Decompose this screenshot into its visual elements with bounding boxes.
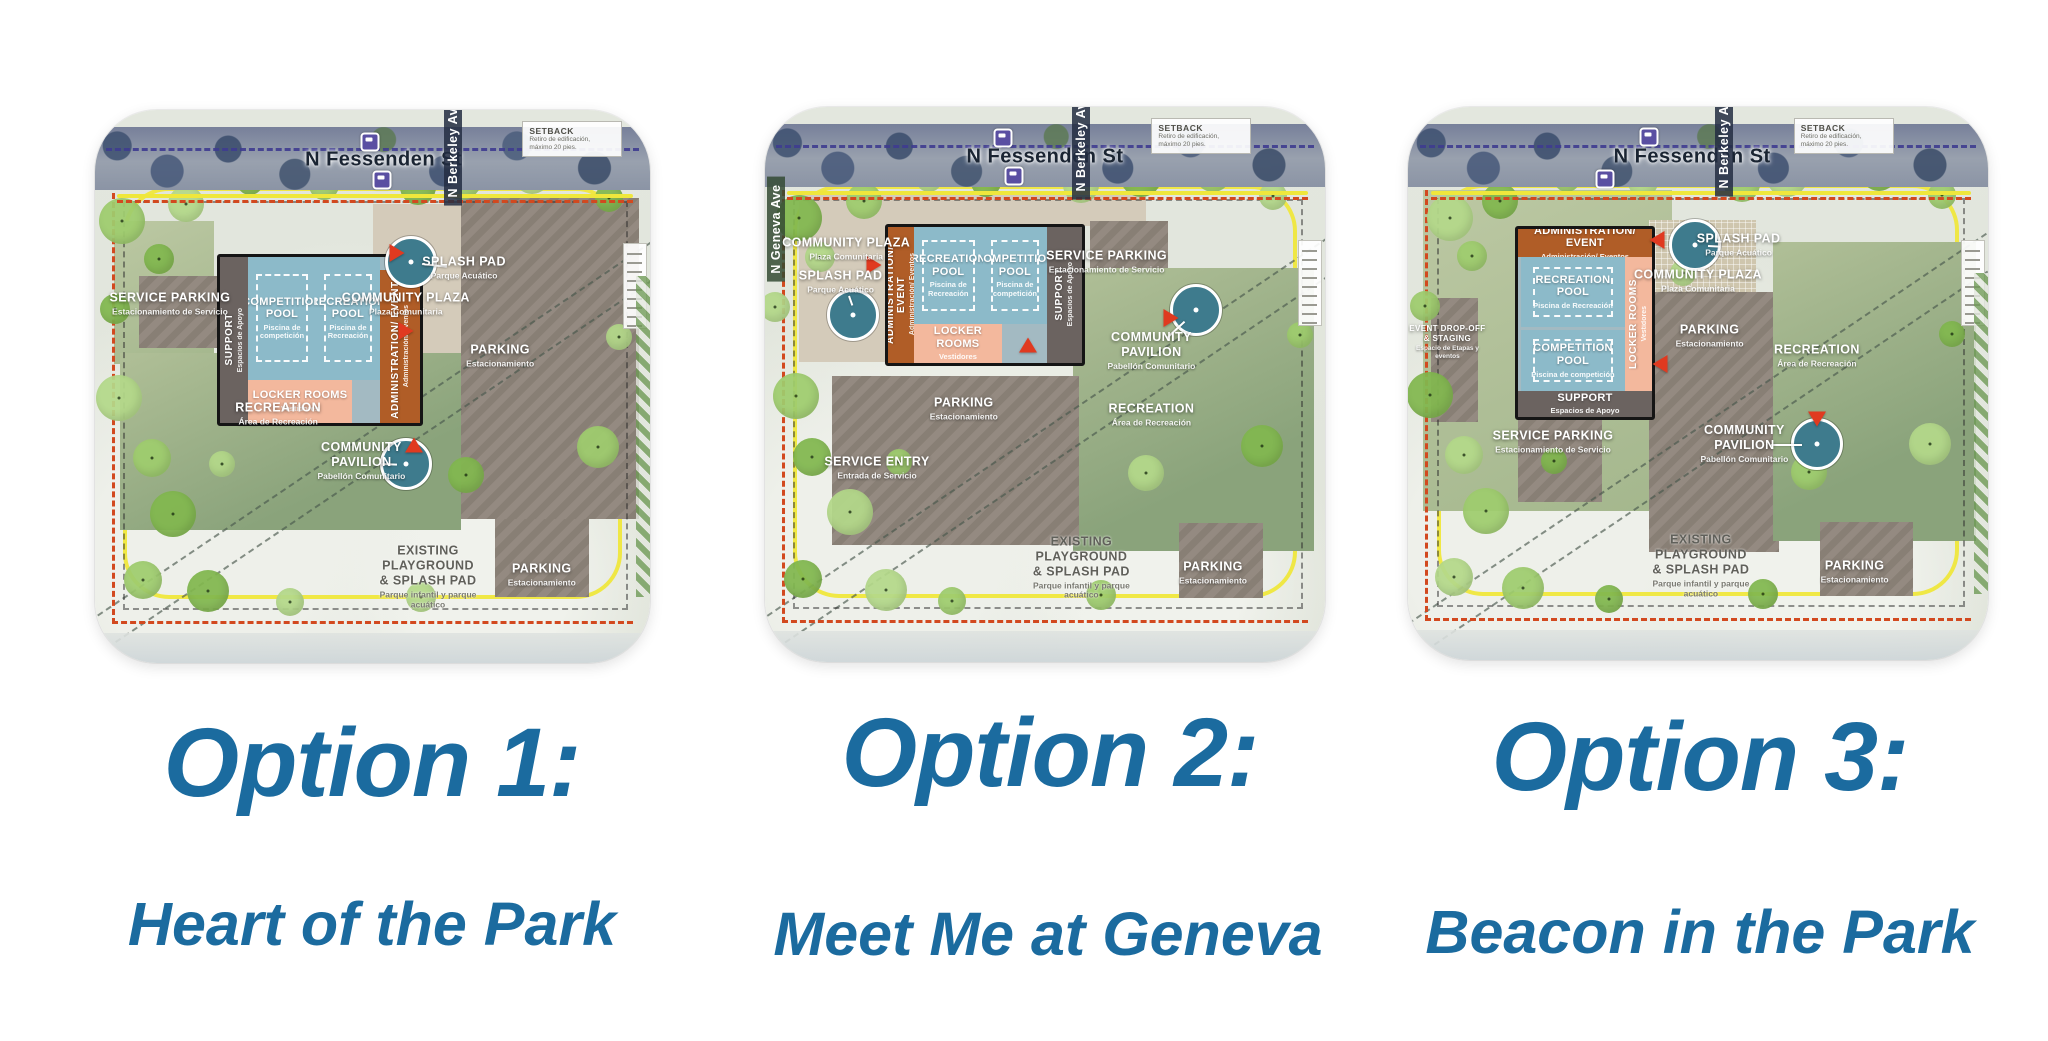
tree xyxy=(1595,585,1623,613)
tree xyxy=(1408,372,1453,418)
tree xyxy=(133,439,171,477)
tree xyxy=(1463,488,1509,534)
setback-note-line: Retiro de edificación, xyxy=(1801,133,1887,141)
locker-rooms-label: LOCKER ROOMS xyxy=(1628,279,1639,369)
tree xyxy=(124,561,162,599)
boundary-line-south xyxy=(782,620,1308,623)
tree xyxy=(846,183,882,219)
tree xyxy=(765,292,790,322)
aquatic-facility-building: ADMINISTRATION/ EVENTAdministración/ Eve… xyxy=(885,224,1084,366)
support-wing-label: SUPPORT xyxy=(224,313,235,366)
competition-pool-label: COMPETITION POOL xyxy=(248,296,316,321)
site-plan-option-3: ADMINISTRATION/ EVENTAdministración/ Eve… xyxy=(1408,107,1988,660)
setback-note-title: SETBACK xyxy=(1801,123,1887,133)
administration-wing: ADMINISTRATION/ EVENTAdministración/ Eve… xyxy=(1518,229,1651,257)
boundary-line-south xyxy=(112,621,634,624)
edge-note xyxy=(1298,240,1322,326)
setback-line xyxy=(787,197,1308,200)
tree xyxy=(209,451,235,477)
setback-note: SETBACKRetiro de edificación,máximo 20 p… xyxy=(522,121,622,157)
hedge-zigzag xyxy=(636,276,650,597)
administration-wing-label: ADMINISTRATION/ EVENT xyxy=(1518,229,1651,250)
street-label-fessenden: N Fessenden St xyxy=(305,148,462,171)
competition-pool: COMPETITION POOLPiscina de competición xyxy=(1521,330,1625,390)
tree xyxy=(1748,579,1778,609)
tree xyxy=(100,294,130,324)
tree xyxy=(406,582,436,612)
setback-note-line: máximo 20 pies. xyxy=(1801,141,1887,149)
setback-line xyxy=(117,200,633,203)
tree xyxy=(1410,291,1440,321)
tree xyxy=(1909,423,1951,465)
street-label-fessenden: N Fessenden St xyxy=(966,145,1123,168)
tree xyxy=(1541,448,1567,474)
bus-stop-icon xyxy=(1639,128,1658,147)
aquatic-facility-building: ADMINISTRATION/ EVENTAdministración/ Eve… xyxy=(1515,226,1654,420)
support-wing-sublabel: Espacios de Apoyo xyxy=(1067,262,1074,326)
setback-note-line: Retiro de edificación, xyxy=(529,136,615,144)
support-wing-sublabel: Espacios de Apoyo xyxy=(237,308,244,372)
tree xyxy=(784,560,822,598)
competition-pool: COMPETITION POOLPiscina de competición xyxy=(248,257,316,380)
locker-rooms-label: LOCKER ROOMS xyxy=(914,325,1003,350)
splash-pad-circle xyxy=(827,289,879,341)
entry-marker-right xyxy=(867,256,882,274)
recreation-pool-label: RECREATION POOL xyxy=(1521,274,1625,299)
entry-marker-left xyxy=(1653,355,1668,373)
street-label-fessenden: N Fessenden St xyxy=(1614,145,1771,168)
path-line xyxy=(117,194,633,198)
bus-stop-icon xyxy=(994,128,1013,147)
setback-note-title: SETBACK xyxy=(1158,123,1244,133)
setback-note-title: SETBACK xyxy=(529,126,615,136)
tree xyxy=(276,588,304,616)
administration-wing: ADMINISTRATION/ EVENTSAdministración/ Ev… xyxy=(380,270,420,423)
boundary-line-south xyxy=(1425,618,1970,621)
fessenden-street: N Fessenden St xyxy=(1408,124,1988,188)
tree xyxy=(448,457,484,493)
entry-marker-right xyxy=(1164,309,1179,327)
option-3-title: Option 3: xyxy=(1380,706,2020,808)
support-wing-label: SUPPORT xyxy=(1557,392,1612,405)
tree xyxy=(1128,455,1164,491)
locker-rooms: LOCKER ROOMSVestidores xyxy=(1625,257,1652,390)
entry-marker-right xyxy=(398,322,413,340)
street-label-berkeley: N Berkeley Ave xyxy=(444,110,462,205)
locker-rooms-sublabel: Vestidores xyxy=(939,353,977,361)
setback-line xyxy=(1431,197,1970,200)
south-houses-strip xyxy=(95,633,650,663)
competition-pool-sublabel: Piscina de competición xyxy=(1531,371,1614,379)
support-wing: SUPPORTEspacios de Apoyo xyxy=(1518,391,1651,417)
option-3-subtitle: Beacon in the Park xyxy=(1370,900,2030,964)
tree xyxy=(827,489,873,535)
competition-pool-sublabel: Piscina de competición xyxy=(248,324,316,341)
bus-stop-icon xyxy=(360,133,379,152)
tree xyxy=(1086,580,1116,610)
path-line xyxy=(1431,191,1970,195)
south-houses-strip xyxy=(1408,630,1988,660)
tree xyxy=(168,186,204,222)
recreation-pool: RECREATION POOLPiscina de Recreación xyxy=(316,257,380,380)
tree xyxy=(773,373,819,419)
support-wing: SUPPORTEspacios de Apoyo xyxy=(220,257,248,423)
entry-marker-up xyxy=(405,437,423,452)
street-label-berkeley: N Berkeley Ave xyxy=(1072,107,1090,200)
setback-note-line: máximo 20 pies. xyxy=(1158,141,1244,149)
entry-marker-right xyxy=(390,244,405,262)
locker-rooms-label: LOCKER ROOMS xyxy=(253,389,348,402)
competition-pool-sublabel: Piscina de competición xyxy=(983,281,1047,298)
support-wing-label: SUPPORT xyxy=(1054,268,1065,321)
locker-rooms-sublabel: Vestidores xyxy=(281,405,319,413)
bus-stop-icon xyxy=(372,171,391,190)
tree xyxy=(144,244,174,274)
recreation-pool: RECREATION POOLPiscina de Recreación xyxy=(1521,257,1625,327)
tree xyxy=(150,491,196,537)
recreation-pool: RECREATION POOLPiscina de Recreación xyxy=(914,227,984,325)
tree xyxy=(865,569,907,611)
street-label-geneva: N Geneva Ave xyxy=(767,177,785,282)
entry-marker-up xyxy=(1019,337,1037,352)
site-plan-option-1: SUPPORTEspacios de ApoyoCOMPETITION POOL… xyxy=(95,110,650,663)
setback-note: SETBACKRetiro de edificación,máximo 20 p… xyxy=(1794,118,1894,154)
recreation-pool-label: RECREATION POOL xyxy=(914,253,984,278)
bus-stop-icon xyxy=(1596,169,1615,188)
option-2-title: Option 2: xyxy=(730,702,1370,804)
recreation-pool-sublabel: Piscina de Recreación xyxy=(1533,302,1613,310)
administration-wing-label: ADMINISTRATION/ EVENT xyxy=(888,227,907,363)
bus-stop-icon xyxy=(1005,167,1024,186)
tree xyxy=(577,426,619,468)
tree xyxy=(938,587,966,615)
tree xyxy=(1445,436,1483,474)
setback-note: SETBACKRetiro de edificación,máximo 20 p… xyxy=(1151,118,1251,154)
tree xyxy=(1502,567,1544,609)
hedge-zigzag xyxy=(1974,273,1988,594)
entry-marker-left xyxy=(1650,231,1665,249)
option-2-subtitle: Meet Me at Geneva xyxy=(718,902,1378,966)
setback-note-line: máximo 20 pies. xyxy=(529,144,615,152)
leader-line xyxy=(1771,444,1803,446)
tree xyxy=(793,438,831,476)
administration-wing-label: ADMINISTRATION/ EVENTS xyxy=(390,274,401,419)
tree xyxy=(1241,425,1283,467)
tree xyxy=(187,570,229,612)
recreation-pool-label: RECREATION POOL xyxy=(316,296,380,321)
leader-line xyxy=(381,463,397,466)
setback-note-line: Retiro de edificación, xyxy=(1158,133,1244,141)
locker-rooms-sublabel: Vestidores xyxy=(1641,306,1648,341)
administration-wing: ADMINISTRATION/ EVENTAdministración/ Eve… xyxy=(888,227,913,363)
support-wing: SUPPORTEspacios de Apoyo xyxy=(1047,227,1082,363)
south-houses-strip xyxy=(765,631,1325,662)
option-1-title: Option 1: xyxy=(52,712,692,814)
option-1-subtitle: Heart of the Park xyxy=(42,892,702,956)
tree xyxy=(1482,183,1518,219)
tree xyxy=(886,449,912,475)
tree xyxy=(1427,195,1473,241)
tree xyxy=(1435,558,1473,596)
tree xyxy=(99,198,145,244)
locker-rooms: LOCKER ROOMSVestidores xyxy=(248,380,352,423)
competition-pool-label: COMPETITION POOL xyxy=(983,253,1047,278)
entry-marker-down xyxy=(1808,412,1826,427)
administration-wing-sublabel: Administración/ Eventos xyxy=(403,305,410,387)
competition-pool: COMPETITION POOLPiscina de competición xyxy=(983,227,1047,325)
tree xyxy=(805,242,835,272)
path-line xyxy=(787,191,1308,195)
locker-rooms: LOCKER ROOMSVestidores xyxy=(914,324,1003,362)
tree xyxy=(96,375,142,421)
tree xyxy=(1457,241,1487,271)
site-plan-option-2: ADMINISTRATION/ EVENTAdministración/ Eve… xyxy=(765,107,1325,662)
recreation-pool-sublabel: Piscina de Recreación xyxy=(914,281,984,298)
street-label-berkeley: N Berkeley Ave xyxy=(1715,107,1733,197)
recreation-pool-sublabel: Piscina de Recreación xyxy=(316,324,380,341)
competition-pool-label: COMPETITION POOL xyxy=(1521,342,1625,367)
support-wing-sublabel: Espacios de Apoyo xyxy=(1551,407,1620,415)
